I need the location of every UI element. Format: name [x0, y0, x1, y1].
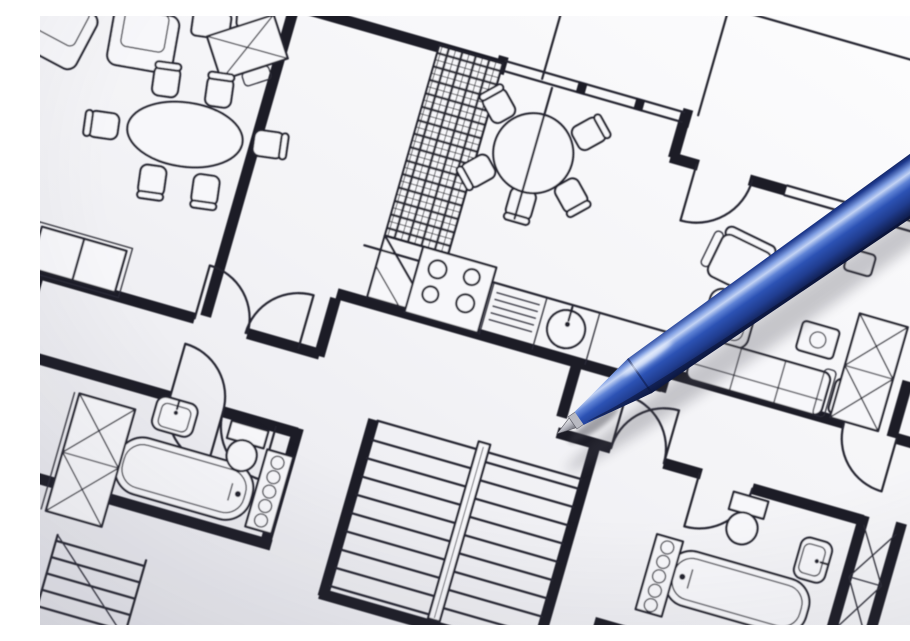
photo-canvas [40, 16, 910, 625]
floor-plan-photograph: Close-up photo of an architectural apart… [40, 16, 910, 625]
